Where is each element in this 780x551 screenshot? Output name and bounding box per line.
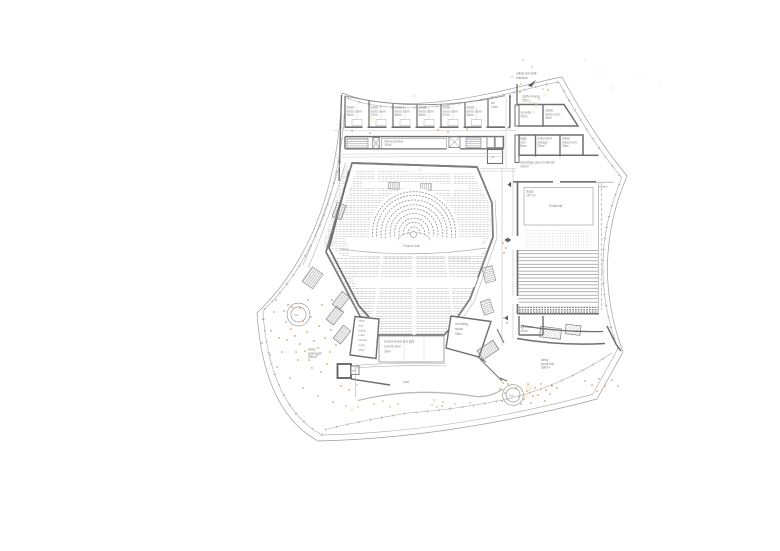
svg-text:20m²: 20m² [521,329,529,333]
svg-text:room: room [359,343,366,347]
svg-text:void: void [403,380,409,384]
svg-text:25m²: 25m² [538,144,546,148]
svg-text:recording: recording [455,322,468,326]
svg-text:control room: control room [384,345,401,349]
svg-text:30m²: 30m² [562,144,570,148]
svg-text:157 m²: 157 m² [526,193,537,197]
svg-text:385m²: 385m² [308,355,318,359]
svg-text:38m²: 38m² [395,113,403,117]
svg-text:580m²: 580m² [541,366,551,370]
svg-text:bar: bar [295,313,299,317]
svg-text:30m²: 30m² [385,143,393,147]
svg-text:37m²: 37m² [443,113,451,117]
svg-text:55m²: 55m² [455,332,463,336]
svg-text:video: video [359,319,366,323]
svg-text:37m²: 37m² [371,113,379,117]
svg-text:Grand hall: Grand hall [403,244,420,248]
svg-text:25m²: 25m² [521,114,529,118]
svg-text:30m²: 30m² [545,116,553,120]
svg-text:ment: ment [359,333,366,337]
svg-text:entrance: entrance [516,76,528,80]
svg-text:Small hall: Small hall [549,204,562,208]
svg-text:lift: lift [492,155,495,159]
svg-text:control: control [359,338,368,342]
svg-text:studio: studio [455,327,463,331]
svg-text:10m²: 10m² [491,105,499,109]
svg-text:closed sound and light: closed sound and light [384,340,414,344]
svg-text:30m²: 30m² [384,350,392,354]
svg-text:equip-: equip- [359,328,367,332]
svg-text:45m²: 45m² [520,144,528,148]
svg-text:45m²: 45m² [359,348,366,352]
svg-text:and: and [359,323,364,327]
svg-text:100m²: 100m² [520,165,530,169]
svg-text:36m²: 36m² [467,113,475,117]
svg-text:curtain: curtain [599,185,608,189]
svg-text:36m²: 36m² [347,113,355,117]
svg-text:bar: bar [510,393,514,397]
svg-text:36m²: 36m² [419,113,427,117]
